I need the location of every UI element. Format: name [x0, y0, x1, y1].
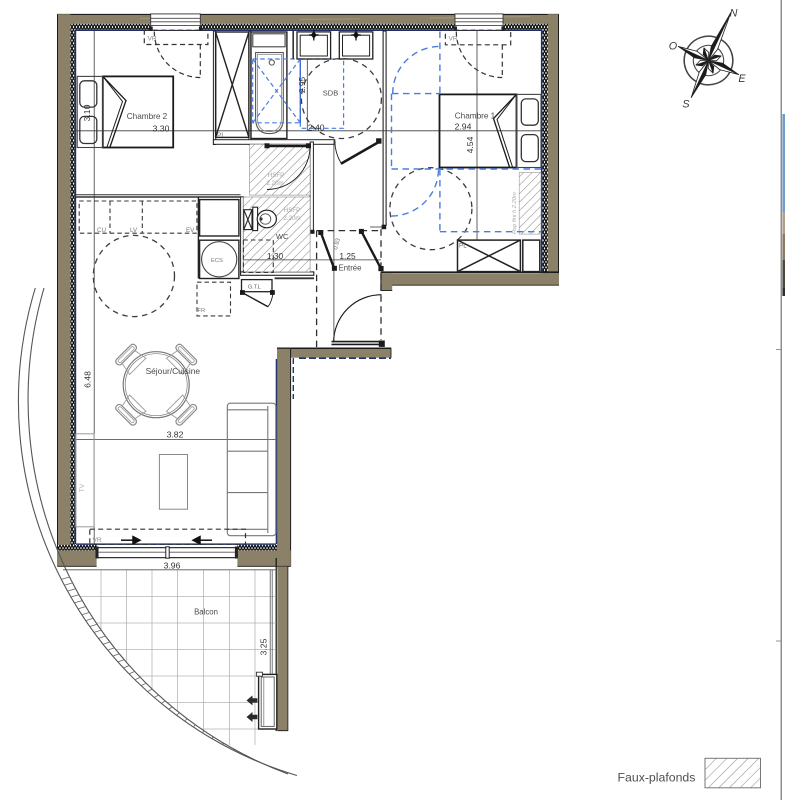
svg-text:WC: WC [276, 232, 289, 241]
svg-text:TV: TV [79, 483, 86, 492]
svg-text:S: S [682, 99, 690, 111]
svg-text:HSFP: HSFP [268, 172, 285, 179]
svg-text:SDB: SDB [323, 89, 338, 98]
svg-text:FR: FR [198, 308, 206, 314]
svg-text:Faux-plafonds: Faux-plafonds [618, 771, 696, 785]
svg-text:3.96: 3.96 [164, 560, 181, 570]
svg-text:3.10: 3.10 [82, 104, 92, 121]
svg-text:Chambre 2: Chambre 2 [127, 112, 168, 121]
svg-text:E: E [738, 73, 746, 85]
svg-text:2.94: 2.94 [455, 121, 472, 131]
svg-text:1.30: 1.30 [267, 251, 284, 261]
svg-text:Chambre 1: Chambre 1 [455, 111, 496, 120]
svg-text:LV: LV [130, 227, 138, 234]
svg-text:1.25: 1.25 [339, 251, 356, 261]
svg-text:CU: CU [97, 227, 106, 234]
svg-text:Séjour/Cuisine: Séjour/Cuisine [146, 366, 201, 376]
svg-text:VR: VR [148, 36, 157, 43]
svg-text:Hsp fini h 2.20m: Hsp fini h 2.20m [512, 192, 518, 234]
svg-text:Entrée: Entrée [339, 263, 362, 272]
svg-text:3.82: 3.82 [167, 429, 184, 439]
svg-text:3.30: 3.30 [153, 124, 170, 134]
svg-text:VR: VR [93, 537, 102, 544]
svg-text:PL: PL [459, 243, 467, 250]
svg-text:G.T.L: G.T.L [248, 285, 261, 291]
svg-text:EV: EV [186, 227, 195, 234]
svg-text:2.95: 2.95 [297, 77, 307, 94]
svg-text:N: N [730, 8, 738, 20]
svg-text:3.25: 3.25 [259, 638, 269, 655]
svg-text:PL: PL [217, 132, 225, 139]
svg-text:O: O [669, 41, 678, 53]
svg-text:2.20m: 2.20m [283, 215, 300, 222]
svg-text:4.54: 4.54 [465, 136, 475, 153]
svg-text:VR: VR [449, 36, 458, 43]
svg-text:2.20m: 2.20m [266, 180, 283, 187]
svg-text:Balcon: Balcon [194, 608, 218, 617]
svg-text:HSFP: HSFP [284, 207, 301, 214]
svg-text:2.40: 2.40 [308, 123, 325, 133]
svg-text:6.48: 6.48 [83, 371, 93, 388]
svg-text:ECS: ECS [211, 258, 223, 264]
